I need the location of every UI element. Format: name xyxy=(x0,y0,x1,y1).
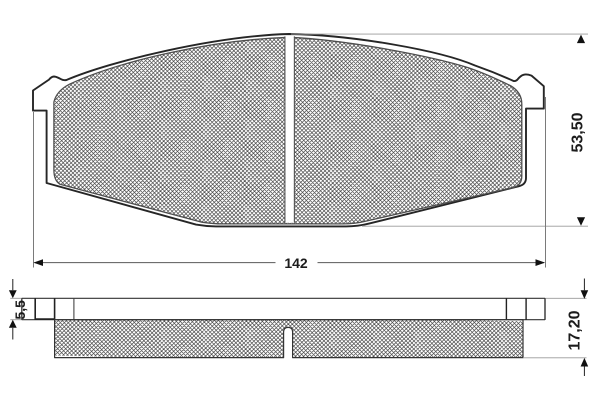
svg-text:5,5: 5,5 xyxy=(12,300,28,320)
svg-text:142: 142 xyxy=(284,255,308,271)
svg-text:17,20: 17,20 xyxy=(567,310,584,350)
svg-text:53,50: 53,50 xyxy=(570,112,587,152)
